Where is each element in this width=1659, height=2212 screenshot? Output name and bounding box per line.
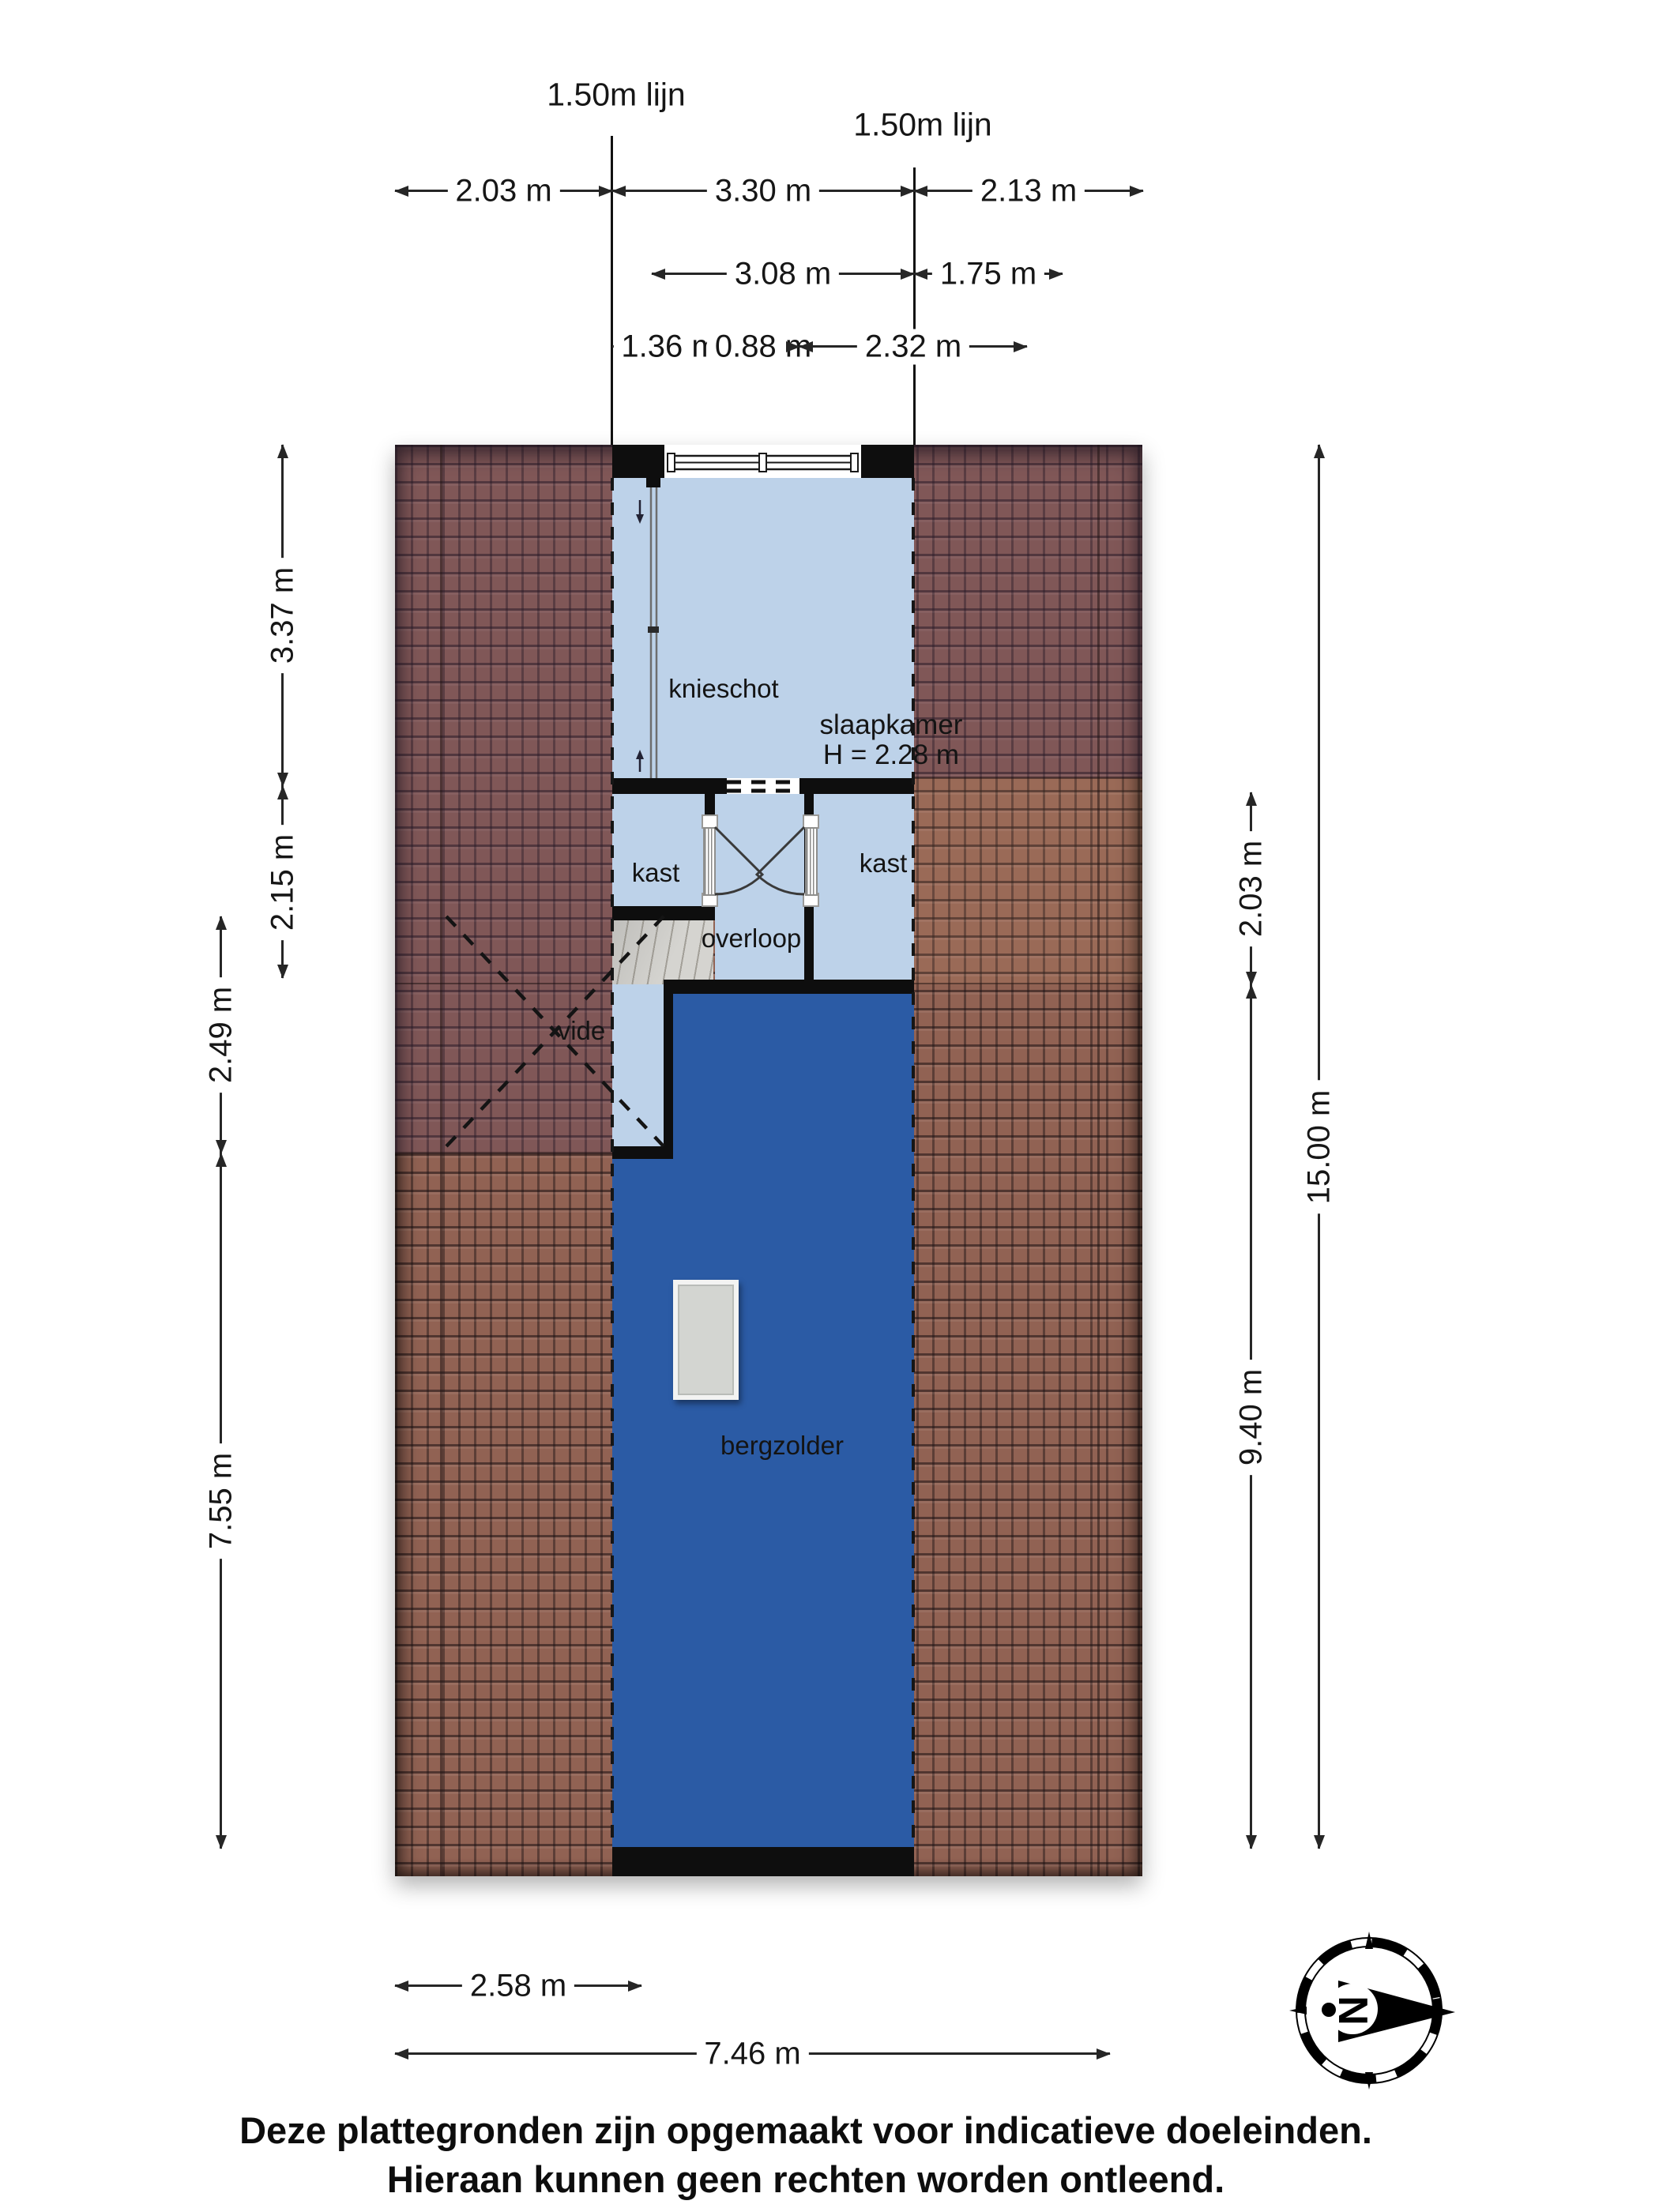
room-label-knieschot: knieschot (668, 674, 778, 704)
dim-label: 1.75 m (932, 257, 1044, 292)
dim-label: 2.03 m (1234, 831, 1270, 946)
guide-line-left (611, 136, 613, 445)
dim-label: 2.32 m (857, 329, 969, 365)
compass-north-letter: N (1330, 1996, 1375, 2026)
dim-top: 0.88 m (727, 345, 799, 348)
roof-shade-right-mid (914, 778, 1142, 984)
dim-label: 2.03 m (447, 174, 559, 209)
svg-text:N: N (1330, 1996, 1375, 2026)
kneewall-dashed-right (912, 478, 915, 1847)
dim-left: 2.49 m (220, 916, 222, 1153)
footer-disclaimer-line1: Deze plattegronden zijn opgemaakt voor i… (0, 2106, 1612, 2155)
dim-top: 2.13 m (914, 190, 1143, 192)
roof-seam (914, 777, 1142, 779)
room-label-kast-right: kast (860, 848, 908, 878)
door-leaf-left (703, 827, 716, 896)
compass-icon: N (1288, 1932, 1469, 2101)
room-label-overloop: overloop (702, 924, 802, 954)
room-label-slaapkamer-height: H = 2.28 m (823, 739, 959, 771)
dim-left: 2.15 m (281, 786, 284, 978)
wall (612, 1146, 673, 1159)
dim-top: 2.32 m (799, 345, 1027, 348)
wall (664, 980, 673, 1159)
dim-label: 15.00 m (1302, 1080, 1337, 1213)
line-label-right: 1.50m lijn (853, 107, 991, 144)
wall (612, 906, 715, 920)
line-label-left: 1.50m lijn (547, 77, 685, 114)
dim-label: 2.13 m (972, 174, 1085, 209)
room-vide-strip (612, 984, 664, 1146)
guide-line-right (913, 167, 916, 445)
dim-label: 7.55 m (204, 1443, 239, 1559)
dim-top: 2.03 m (395, 190, 612, 192)
roof-shade-left-upper (395, 445, 612, 1153)
dim-bottom: 7.46 m (395, 2052, 1110, 2055)
dim-label: 3.30 m (707, 174, 819, 209)
door-leaf-right (805, 827, 818, 896)
dim-top: 1.75 m (914, 273, 1063, 275)
dim-right: 9.40 m (1250, 985, 1252, 1849)
room-kast-right (814, 794, 914, 980)
dim-label: 9.40 m (1234, 1359, 1270, 1474)
floorplan-page: 1.50m lijn 1.50m lijn 2.03 m 3.30 m 2.13… (0, 0, 1659, 2212)
wall (664, 980, 914, 994)
dim-label: 3.37 m (265, 558, 301, 673)
roof-seam (914, 983, 1142, 984)
skylight-hatch (673, 1280, 739, 1400)
roof-seam (1097, 445, 1100, 1876)
dim-label: 3.08 m (727, 257, 839, 292)
room-label-bergzolder: bergzolder (720, 1431, 844, 1461)
wall-opening (727, 778, 799, 794)
room-bergzolder-upper (673, 994, 914, 1159)
dim-right: 2.03 m (1250, 792, 1252, 985)
room-label-slaapkamer: slaapkamer (820, 709, 963, 741)
wall (612, 445, 664, 478)
dim-label: 2.15 m (265, 824, 301, 939)
wall (861, 445, 914, 478)
roof-seam (395, 1152, 612, 1154)
floorplan-drawing: knieschot slaapkamer H = 2.28 m kast kas… (395, 445, 1142, 1876)
roof-seam (440, 445, 442, 1876)
dim-label: 7.46 m (696, 2037, 808, 2072)
kneewall-dashed-left (611, 478, 614, 1847)
dim-left: 7.55 m (220, 1153, 222, 1849)
roof-seam (395, 983, 612, 984)
dim-label: 2.58 m (462, 1969, 574, 2004)
dim-bottom: 2.58 m (395, 1984, 641, 1987)
room-bergzolder (612, 1159, 914, 1847)
dim-top: 3.30 m (612, 190, 914, 192)
dim-label: 2.49 m (204, 977, 239, 1093)
window-area (664, 445, 861, 478)
room-label-kast-left: kast (632, 858, 680, 888)
dim-left: 3.37 m (281, 445, 284, 786)
room-kast-left (612, 794, 705, 906)
room-label-vide: vide (558, 1016, 606, 1046)
footer-disclaimer-line2: Hieraan kunnen geen rechten worden ontle… (0, 2155, 1612, 2204)
dim-top: 3.08 m (652, 273, 914, 275)
wall (612, 1847, 914, 1876)
dim-right: 15.00 m (1318, 445, 1320, 1849)
staircase (612, 920, 713, 984)
